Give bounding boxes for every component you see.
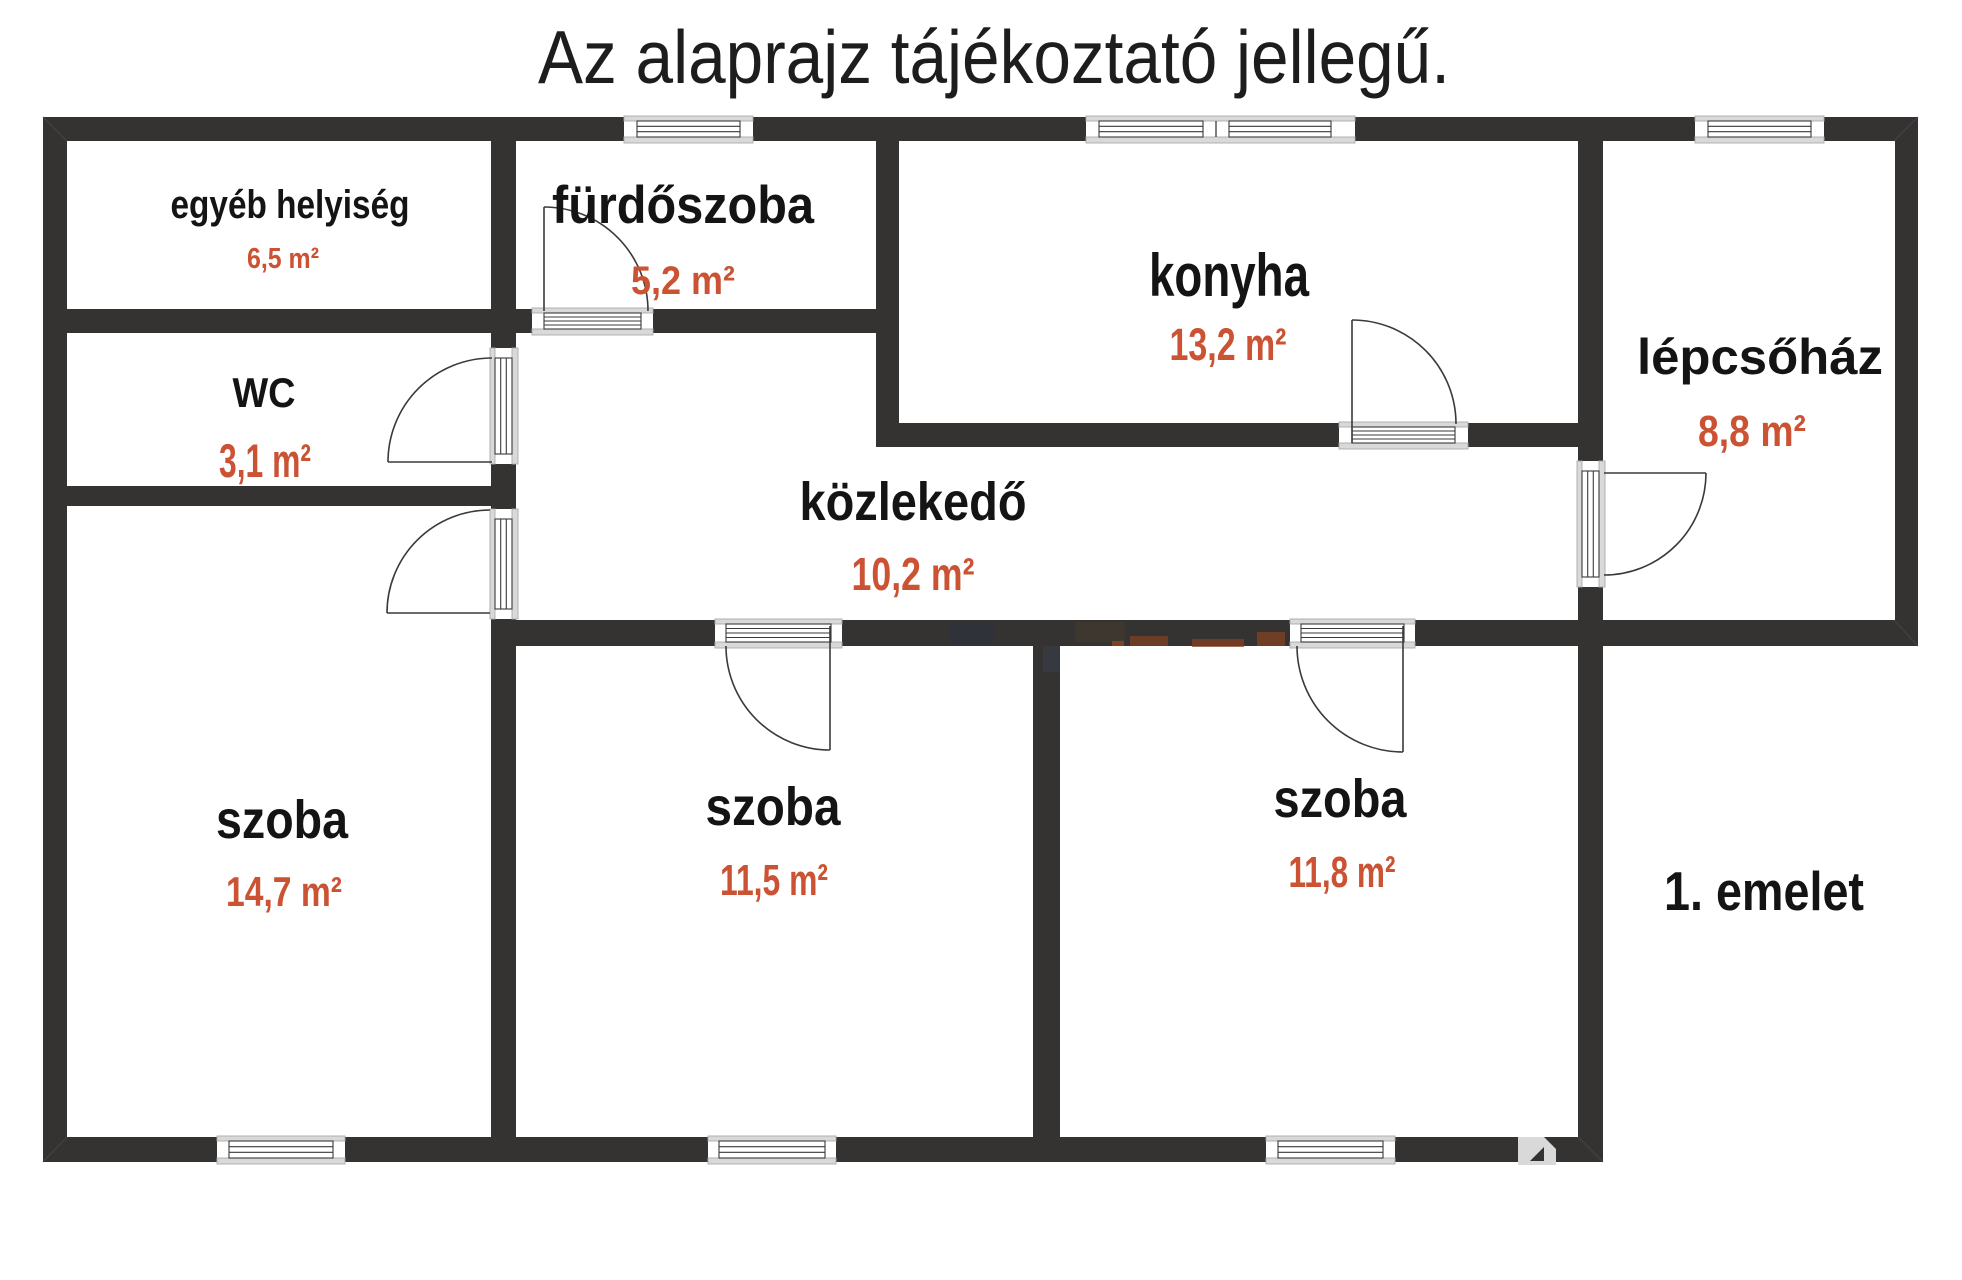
- svg-text:11,8 m²: 11,8 m²: [1289, 848, 1396, 897]
- svg-text:lépcsőház: lépcsőház: [1637, 329, 1883, 385]
- svg-text:szoba: szoba: [216, 790, 349, 850]
- svg-text:szoba: szoba: [706, 777, 842, 837]
- svg-text:6,5 m²: 6,5 m²: [247, 243, 319, 275]
- svg-text:10,2 m²: 10,2 m²: [852, 548, 975, 600]
- svg-text:1. emelet: 1. emelet: [1664, 860, 1864, 922]
- svg-text:közlekedő: közlekedő: [800, 472, 1027, 532]
- svg-text:14,7 m²: 14,7 m²: [226, 868, 342, 915]
- svg-text:5,2 m²: 5,2 m²: [631, 259, 735, 303]
- svg-text:11,5 m²: 11,5 m²: [720, 856, 828, 905]
- svg-text:fürdőszoba: fürdőszoba: [552, 176, 814, 235]
- svg-text:konyha: konyha: [1149, 242, 1309, 309]
- svg-text:13,2 m²: 13,2 m²: [1170, 319, 1287, 370]
- svg-text:8,8 m²: 8,8 m²: [1698, 407, 1806, 456]
- svg-text:WC: WC: [233, 369, 296, 416]
- svg-text:szoba: szoba: [1274, 769, 1408, 829]
- svg-text:3,1 m²: 3,1 m²: [219, 434, 311, 487]
- svg-text:egyéb helyiség: egyéb helyiség: [171, 183, 410, 227]
- svg-text:Az alaprajz tájékoztató jelleg: Az alaprajz tájékoztató jellegű.: [538, 15, 1450, 99]
